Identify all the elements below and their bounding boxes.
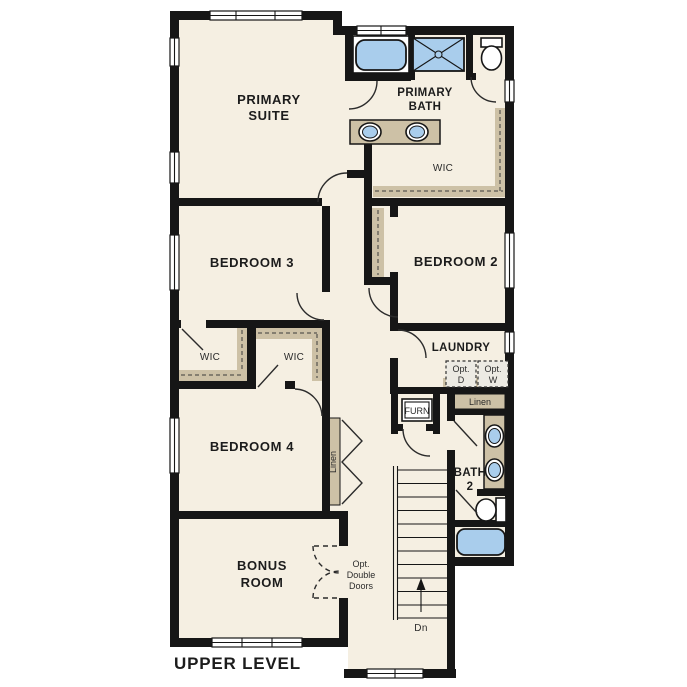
bonus-room-label: BONUS <box>237 558 287 573</box>
bathtub-bath2 <box>457 529 505 555</box>
window <box>357 26 406 35</box>
opt-dryer-label: Opt. <box>452 364 469 374</box>
bedroom4-label: BEDROOM 4 <box>210 439 294 454</box>
window <box>170 418 179 473</box>
opt-washer-label-2: W <box>489 375 498 385</box>
opt-washer-label: Opt. <box>484 364 501 374</box>
bonus-room-label-2: ROOM <box>241 575 284 590</box>
floor-plan-svg: PRIMARY SUITE PRIMARY BATH WIC BEDROOM 3… <box>0 0 687 687</box>
bathtub <box>353 36 409 73</box>
primary-bath-label: PRIMARY <box>397 87 452 99</box>
linen-laundry-label: Linen <box>469 397 491 407</box>
window <box>505 80 514 102</box>
laundry-label: LAUNDRY <box>432 342 491 354</box>
primary-suite-label: PRIMARY <box>237 92 301 107</box>
window <box>210 11 302 20</box>
primary-suite-label-2: SUITE <box>248 108 289 123</box>
window <box>170 152 179 183</box>
linen-hall-label: Linen <box>328 451 338 473</box>
opt-double-doors-label: Opt. <box>352 559 369 569</box>
toilet-bath2 <box>476 498 506 522</box>
vanity <box>350 120 440 144</box>
shower <box>413 38 464 71</box>
window <box>505 332 514 353</box>
bedroom2-label: BEDROOM 2 <box>414 254 498 269</box>
opt-dryer-label-2: D <box>458 375 465 385</box>
window <box>170 235 179 290</box>
toilet <box>481 38 502 70</box>
window <box>505 233 514 288</box>
primary-bath-label-2: BATH <box>409 101 442 113</box>
wic-left-label: WIC <box>200 352 220 363</box>
window <box>212 638 302 647</box>
floor-plan: PRIMARY SUITE PRIMARY BATH WIC BEDROOM 3… <box>0 0 687 687</box>
wic-primary-label: WIC <box>433 163 453 174</box>
bath2-label: BATH <box>454 467 487 479</box>
bedroom3-label: BEDROOM 3 <box>210 255 294 270</box>
opt-double-doors-label-2: Double <box>347 570 376 580</box>
bath2-label-2: 2 <box>467 481 474 493</box>
window <box>367 669 423 678</box>
window <box>170 38 179 66</box>
vanity-bath2 <box>484 415 505 489</box>
stairs-dn-label: Dn <box>414 623 427 634</box>
opt-double-doors-label-3: Doors <box>349 581 374 591</box>
furnace-label: FURN <box>405 406 430 416</box>
plan-title: UPPER LEVEL <box>174 654 301 673</box>
wic-right-label: WIC <box>284 352 304 363</box>
